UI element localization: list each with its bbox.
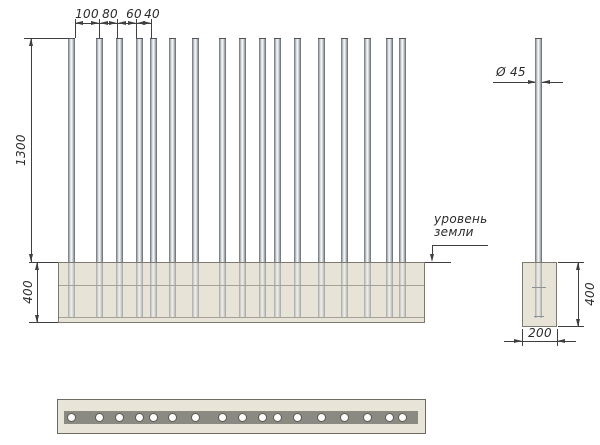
dim-ext-line — [151, 19, 152, 38]
mounting-hole — [191, 413, 200, 422]
dim-ext-line — [557, 329, 558, 346]
embedded-pole — [136, 263, 143, 318]
fence-technical-drawing: 100 80 60 40 1300 400 уровень земли — [0, 0, 600, 445]
dim-arrow — [118, 21, 126, 25]
dim-arrow — [576, 319, 580, 327]
dim-ext-line — [558, 262, 584, 263]
embedded-pole — [274, 263, 281, 318]
embedded-pole — [386, 263, 393, 318]
embedded-pole-side — [535, 263, 542, 318]
embedded-pole — [219, 263, 226, 318]
fence-pole — [399, 38, 406, 262]
embedded-pole — [294, 263, 301, 318]
mounting-hole — [95, 413, 104, 422]
mounting-hole — [168, 413, 177, 422]
dim-line-depth — [37, 262, 38, 323]
fence-pole — [318, 38, 325, 262]
fence-pole — [294, 38, 301, 262]
dim-arrow — [29, 254, 33, 262]
dim-arrow — [100, 21, 108, 25]
mounting-hole — [135, 413, 144, 422]
pole-tick — [532, 287, 546, 288]
embedded-pole — [169, 263, 176, 318]
fence-pole — [219, 38, 226, 262]
embedded-pole — [150, 263, 157, 318]
fence-pole — [386, 38, 393, 262]
leader-arrow — [430, 254, 434, 262]
fence-pole-side — [535, 38, 542, 262]
mounting-hole — [293, 413, 302, 422]
side-foundation — [522, 262, 557, 327]
embedded-pole — [116, 263, 123, 318]
fence-pole — [259, 38, 266, 262]
dim-label-pole-height: 1300 — [14, 134, 28, 166]
dim-arrow — [35, 262, 39, 270]
dim-line-side-depth — [578, 262, 579, 327]
embedded-pole — [259, 263, 266, 318]
embedded-pole — [318, 263, 325, 318]
dim-arrow — [528, 80, 536, 84]
dim-arrow — [542, 80, 550, 84]
ground-level-note: уровень земли — [434, 213, 488, 239]
mounting-hole — [385, 413, 394, 422]
pole-ends-line — [59, 317, 424, 318]
fence-pole — [68, 38, 75, 262]
mounting-hole — [340, 413, 349, 422]
fence-pole — [239, 38, 246, 262]
fence-pole — [192, 38, 199, 262]
embedded-pole — [341, 263, 348, 318]
dim-line-height — [31, 38, 32, 262]
dim-arrow — [514, 339, 522, 343]
leader-line — [432, 245, 488, 246]
mounting-hole — [363, 413, 372, 422]
dim-arrow — [109, 21, 117, 25]
dim-label-spacing-40: 40 — [144, 7, 160, 21]
embedded-pole — [399, 263, 406, 318]
dim-label-diameter: Ø 45 — [496, 65, 526, 79]
dim-label-spacing-100: 100 — [75, 7, 99, 21]
ground-level-note-line2: земли — [434, 226, 488, 239]
embedded-pole — [96, 263, 103, 318]
dim-label-side-depth: 400 — [583, 282, 597, 306]
dim-ext-line — [522, 329, 523, 346]
rebar-line — [59, 285, 424, 286]
plan-view-body — [57, 399, 426, 434]
mounting-hole — [398, 413, 407, 422]
dim-arrow — [29, 38, 33, 46]
dim-arrow — [35, 315, 39, 323]
fence-pole — [364, 38, 371, 262]
dim-ext-line — [558, 326, 584, 327]
fence-pole — [116, 38, 123, 262]
dim-arrow — [557, 339, 565, 343]
pole-end-tick — [534, 316, 544, 317]
dim-label-spacing-60: 60 — [126, 7, 142, 21]
mounting-hole — [238, 413, 247, 422]
mounting-hole — [218, 413, 227, 422]
embedded-pole — [364, 263, 371, 318]
mounting-hole — [258, 413, 267, 422]
dim-arrow — [91, 21, 99, 25]
embedded-pole — [239, 263, 246, 318]
mounting-hole — [67, 413, 76, 422]
embedded-pole — [68, 263, 75, 318]
mounting-hole — [149, 413, 158, 422]
embedded-pole — [192, 263, 199, 318]
fence-pole — [169, 38, 176, 262]
fence-pole — [341, 38, 348, 262]
dim-arrow — [75, 21, 83, 25]
dim-ext-line — [29, 262, 58, 263]
dim-ext-line — [29, 322, 58, 323]
ground-line-extension — [425, 262, 451, 263]
dim-label-spacing-80: 80 — [102, 7, 118, 21]
fence-pole — [136, 38, 143, 262]
dim-label-width: 200 — [528, 326, 552, 340]
fence-pole — [274, 38, 281, 262]
mounting-hole — [115, 413, 124, 422]
dim-arrow — [143, 21, 151, 25]
front-foundation — [58, 262, 425, 323]
dim-arrow — [128, 21, 136, 25]
fence-pole — [150, 38, 157, 262]
mounting-hole — [273, 413, 282, 422]
mounting-hole — [317, 413, 326, 422]
dim-arrow — [576, 262, 580, 270]
fence-pole — [96, 38, 103, 262]
dim-label-foundation-depth: 400 — [21, 280, 35, 304]
